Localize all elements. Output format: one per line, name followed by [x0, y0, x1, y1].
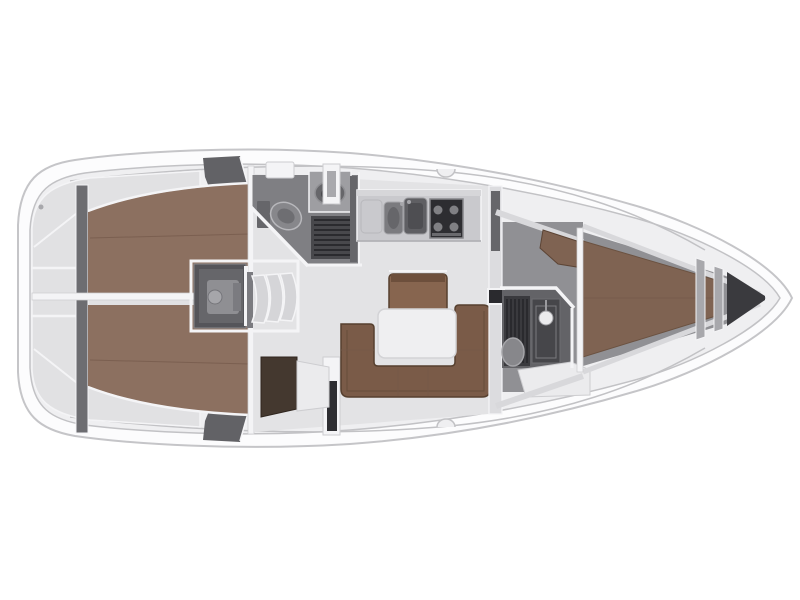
anchor-locker-bulkhead	[696, 258, 705, 340]
aft-cabin-bulkhead-wall	[76, 185, 88, 433]
sink-small-bowl	[388, 207, 400, 229]
faucet-icon	[407, 200, 411, 204]
burner	[450, 206, 459, 215]
bulkhead-dark-segment	[491, 191, 500, 251]
engine-flywheel	[208, 290, 222, 304]
engine-manifold	[233, 283, 241, 311]
aft-shower-grate	[311, 216, 356, 259]
burner	[450, 223, 459, 232]
anchor-locker-bulkhead	[714, 266, 723, 332]
main-bulkhead	[488, 186, 504, 414]
stove-knobs	[432, 233, 461, 236]
forward-toilet	[502, 338, 524, 366]
nav-cabinet	[261, 357, 297, 417]
nav-seat	[297, 361, 329, 411]
deck-hatch	[266, 162, 294, 178]
counter-fiddle	[357, 190, 481, 196]
showerhead-icon	[539, 311, 553, 325]
aft-head-wall	[350, 176, 357, 262]
burner	[434, 206, 443, 215]
faucet-icon	[400, 202, 404, 206]
salon-table	[378, 309, 456, 358]
deck-fitting-dot	[39, 205, 44, 210]
yacht-floorplan	[0, 0, 800, 600]
stove	[430, 199, 463, 238]
galley	[357, 190, 481, 241]
burner	[434, 223, 443, 232]
mast-post	[488, 289, 504, 304]
deck-fitting-top-inner	[327, 171, 336, 197]
sink-large-bowl	[408, 203, 423, 229]
forward-bulkhead	[577, 228, 583, 372]
bench-backrail	[391, 274, 445, 282]
floorplan-canvas	[0, 0, 800, 600]
